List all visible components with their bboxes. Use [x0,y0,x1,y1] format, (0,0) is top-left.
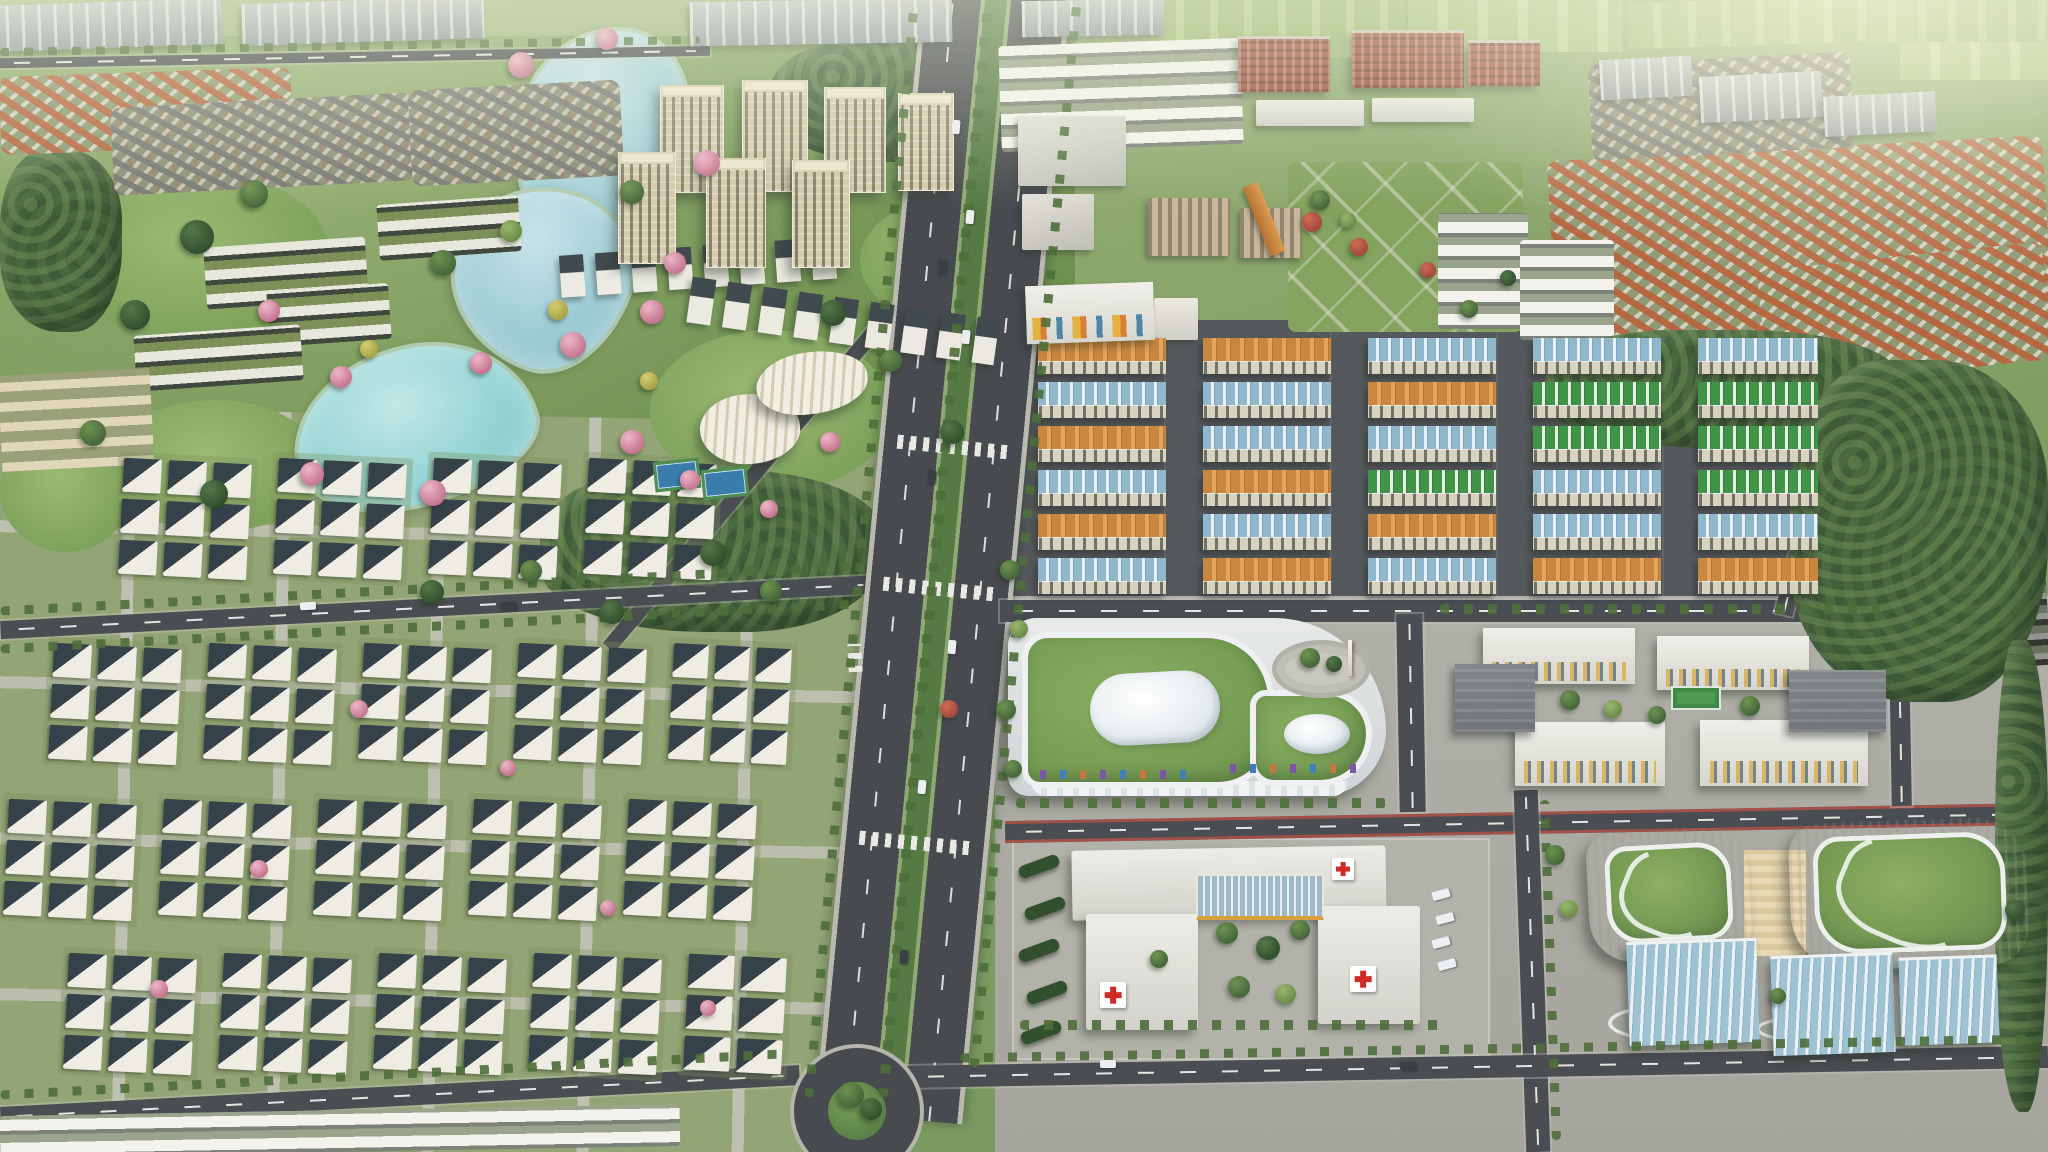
villa [452,647,492,683]
villa [513,725,553,761]
villa [142,647,182,683]
villa [620,998,660,1034]
civic-tree [1560,900,1578,918]
hospital-tree [1228,976,1250,998]
brick-apartment [1352,30,1464,88]
park-tree [80,420,106,446]
villa-block [267,451,414,586]
villa [312,957,352,993]
mall-skylight [1284,714,1350,754]
villa [603,729,643,765]
court-tree [1326,656,1342,672]
tennis-court [701,466,750,501]
park-tree [820,300,846,326]
blossom-tree [250,860,268,878]
civic-tree [1545,845,1565,865]
villa [160,840,200,876]
villa [250,686,290,722]
factory-shed [1599,56,1693,101]
shophouse-row [1368,426,1496,462]
villa [450,688,490,724]
blue-striped-pavilion [1898,954,1999,1045]
villa [140,688,180,724]
farm-field [1627,0,1833,50]
villa [7,799,47,835]
park-tree [620,180,644,204]
lowrise-apartment-rows [1438,213,1528,329]
blossom-tree [700,1000,716,1016]
villa [520,503,560,539]
villa [475,501,515,537]
civic-tree [2005,900,2025,920]
school-building [1657,636,1809,690]
villa [717,803,757,839]
villa [358,725,398,761]
verge-tree [1000,560,1020,580]
villa [517,801,557,837]
red-tree [1420,262,1436,278]
verge-tree [1010,620,1028,638]
campus-tree [1604,700,1622,718]
villa-block [42,636,189,771]
shophouse-row [1533,338,1661,374]
villa [120,499,160,535]
street-tree-row [1016,798,1386,808]
park-tree [520,560,542,582]
shophouse-row [1698,382,1818,418]
villa [710,727,746,763]
villa [753,688,789,724]
mall-courtyard-circle [1272,640,1370,698]
blossom-tree [596,28,618,50]
villa [308,1039,348,1075]
verge-tree [1004,760,1022,778]
shophouse-row [1203,426,1331,462]
factory-shed [1823,91,1937,137]
villa [373,1035,413,1071]
shophouse-row [1698,426,1818,462]
civic-roof-garden [1604,841,1735,945]
township-aerial-scene [0,0,2048,1152]
car-on-street [1400,1062,1416,1070]
car-on-boulevard [937,260,946,275]
blossom-tree [258,300,280,322]
park-tree [1310,190,1330,210]
flag-pole [1348,640,1352,676]
shophouse-row [1698,514,1818,550]
villa [203,883,243,919]
villa [265,996,305,1032]
villa [477,460,517,496]
warehouse [1022,0,1165,37]
villa [623,881,663,917]
villa [751,729,787,765]
blossom-tree [500,760,516,776]
villa [95,844,135,880]
villa [317,799,357,835]
shophouse-row [1698,558,1818,594]
red-tree [1302,212,1322,232]
park-tree [180,220,214,254]
shophouse-row [1368,338,1496,374]
white-slab-building [1256,100,1364,126]
court-tree [1300,648,1320,668]
old-town-gray-village [408,80,625,187]
villa [252,645,292,681]
villa [108,1037,148,1073]
villa-block [617,792,764,927]
villa [687,954,734,990]
villa [93,727,133,763]
villa [515,842,555,878]
villa [203,725,243,761]
mall-school-street [1396,614,1425,812]
villa [293,729,333,765]
villa [65,994,105,1030]
park-tree [500,220,522,242]
villa [517,643,557,679]
villa [403,727,443,763]
park-tree [1340,212,1356,228]
villa-block [422,451,569,586]
shophouse-row [1698,338,1818,374]
basketball-court [1671,686,1721,710]
villa [275,499,315,535]
villa [587,458,627,494]
villa [403,885,443,921]
hospital-west-wing [1086,914,1198,1030]
lowrise-apartment-rows [1520,240,1614,340]
villa [375,994,415,1030]
street-tree-row [1020,1020,1450,1030]
villa [675,503,715,539]
villa [122,458,162,494]
hospital-glass-atrium [1196,874,1324,920]
villa [713,885,753,921]
villa [50,684,90,720]
villa [672,643,708,679]
villa [473,542,513,578]
villa [672,801,712,837]
villa [367,462,407,498]
villa [165,501,205,537]
villa [95,686,135,722]
shophouse-row [1203,558,1331,594]
hospital-tree [1150,950,1168,968]
yellow-tree [640,372,658,390]
apartment-tower [792,160,850,268]
shophouse-row [1038,558,1166,594]
villa-block [507,636,654,771]
shophouse-row [1038,382,1166,418]
villa [472,799,512,835]
villa [310,998,350,1034]
villa [155,998,195,1034]
campus-tree [1648,706,1666,724]
apartment-tower [618,152,676,264]
blossom-tree [820,432,840,452]
street-tree-row [1440,604,1880,614]
shophouse-row [1533,558,1661,594]
farm-field [1900,42,2048,80]
blossom-tree [680,470,700,490]
blossom-tree [694,150,720,176]
villa [360,842,400,878]
shophouse-row [1533,514,1661,550]
villa [407,645,447,681]
villa [448,729,488,765]
shophouse-row [1203,382,1331,418]
villa [362,801,402,837]
villa [205,684,245,720]
villa [273,540,313,576]
villa [668,883,708,919]
villa [218,1035,258,1071]
villa [97,645,137,681]
car-on-boulevard [951,120,960,135]
brick-apartment [1468,40,1540,86]
townhouse-court [133,324,303,392]
villa [622,957,662,993]
villa [207,643,247,679]
shophouse-row [1038,470,1166,506]
villa [577,955,617,991]
school-building [1515,722,1665,786]
villa [320,501,360,537]
shophouse-row [1368,514,1496,550]
villa [756,647,792,683]
villa-block [57,946,204,1081]
villa [313,881,353,917]
park-tree [700,540,726,566]
villa [248,727,288,763]
blossom-tree [640,300,664,324]
villa-block [367,946,514,1081]
car-on-street [300,602,316,611]
red-cross-sign [1350,966,1376,992]
villa [50,842,90,878]
villa [208,544,248,580]
villa [210,503,250,539]
villa [712,686,748,722]
park-tree [600,600,624,624]
villa-block [152,792,299,927]
villa [465,998,505,1034]
villa [670,842,710,878]
villa [405,686,445,722]
hospital-tree [1276,984,1296,1004]
park-tree [240,180,268,208]
villa [468,881,508,917]
villa [138,729,178,765]
villa [377,953,417,989]
villa [407,803,447,839]
villa-block [197,636,344,771]
villa [532,953,572,989]
villa [358,883,398,919]
villa [315,840,355,876]
civic-tree [1770,988,1786,1004]
blossom-tree [350,700,368,718]
blossom-tree [300,462,324,486]
villa [267,955,307,991]
villa [97,803,137,839]
villa [112,955,152,991]
villa [714,645,750,681]
verge-tree [996,700,1016,720]
red-tree [1350,238,1368,256]
forest-patch [0,150,122,332]
blossom-tree [470,352,492,374]
car-on-boulevard [917,780,926,795]
campus-tree [1740,696,1760,716]
villa [162,799,202,835]
shophouse-row [1698,470,1818,506]
villa [715,844,755,880]
red-tree [940,700,958,718]
blossom-tree [508,52,534,78]
shophouse-row [1038,426,1166,462]
villa [158,881,198,917]
villa [738,997,785,1033]
villa-block [462,792,609,927]
campus-tree [1560,690,1580,710]
villa [668,725,704,761]
villa [67,953,107,989]
farm-field [1836,0,2048,42]
villa [670,684,706,720]
shophouse-row [1038,514,1166,550]
villa [48,883,88,919]
park-tree [120,300,150,330]
school-dark-block [1455,664,1535,732]
villa [322,460,362,496]
blossom-tree [420,480,446,506]
villa [222,953,262,989]
villa-block [352,636,499,771]
blossom-tree [150,980,168,998]
villa [625,840,665,876]
hospital-tree [1256,936,1280,960]
shophouse-row [1533,382,1661,418]
park-tree [880,350,902,372]
villa [422,955,462,991]
apartment-tower [706,158,766,268]
villa [297,647,337,683]
park-tree [420,580,444,604]
villa [205,842,245,878]
villa [295,688,335,724]
car-on-boulevard [927,470,936,485]
car-on-boulevard [947,640,956,655]
villa [263,1037,303,1073]
park-tree [760,580,782,602]
factory-shed [1699,71,1823,123]
shophouse-row [1203,514,1331,550]
hospital-tree [1216,922,1238,944]
villa [562,803,602,839]
villa [5,840,45,876]
yellow-tree [360,340,378,358]
mall-skylight [1088,669,1222,748]
mall-banners [1230,764,1360,773]
hospital-east-wing [1318,906,1420,1024]
yellow-tree [548,300,568,320]
villa [118,540,158,576]
red-cross-sign [1332,858,1354,880]
villa [48,725,88,761]
villa [163,542,203,578]
shophouse-row [1368,382,1496,418]
shophouse-row [1368,470,1496,506]
old-town-gray-village [110,92,416,196]
school-wing [1154,298,1198,340]
car-on-boulevard [965,210,974,225]
villa [522,462,562,498]
brick-apartment [1238,36,1330,92]
villa [607,647,647,683]
shophouse-row [1038,338,1166,374]
community-hall [1018,116,1126,186]
villa [558,885,598,921]
villa [252,803,292,839]
villa [558,727,598,763]
mall-banners [1040,770,1190,779]
villa [513,883,553,919]
villa [420,996,460,1032]
villa-block [307,792,454,927]
blossom-tree [600,900,616,916]
school-dark-block [1789,670,1886,732]
park-tree [1500,270,1516,286]
villa [3,881,43,917]
roundabout-tree [860,1098,882,1120]
villa [470,840,510,876]
villa [405,844,445,880]
villa [362,643,402,679]
shophouse-row [1533,470,1661,506]
blue-striped-pavilion [1626,938,1760,1046]
villa [605,688,645,724]
villa [428,540,468,576]
villa [207,801,247,837]
villa [630,501,670,537]
civic-roof-garden [1812,831,2008,956]
villa [560,844,600,880]
villa [583,540,623,576]
villa [627,799,667,835]
villa [575,996,615,1032]
shophouse-row [1533,426,1661,462]
villa [52,801,92,837]
car-on-boulevard [899,950,908,965]
villa-block [0,792,143,927]
villa [740,956,787,992]
villa [530,994,570,1030]
red-cross-sign [1100,982,1126,1008]
blossom-tree [330,366,352,388]
villa [562,645,602,681]
blossom-tree [760,500,778,518]
car-on-street [1100,1060,1116,1068]
white-slab-building [1372,98,1474,122]
shophouse-row [1368,558,1496,594]
blossom-tree [620,430,644,454]
park-tree [430,250,456,276]
villa-block [662,637,799,772]
blossom-tree [560,332,586,358]
park-tree [1460,300,1478,318]
